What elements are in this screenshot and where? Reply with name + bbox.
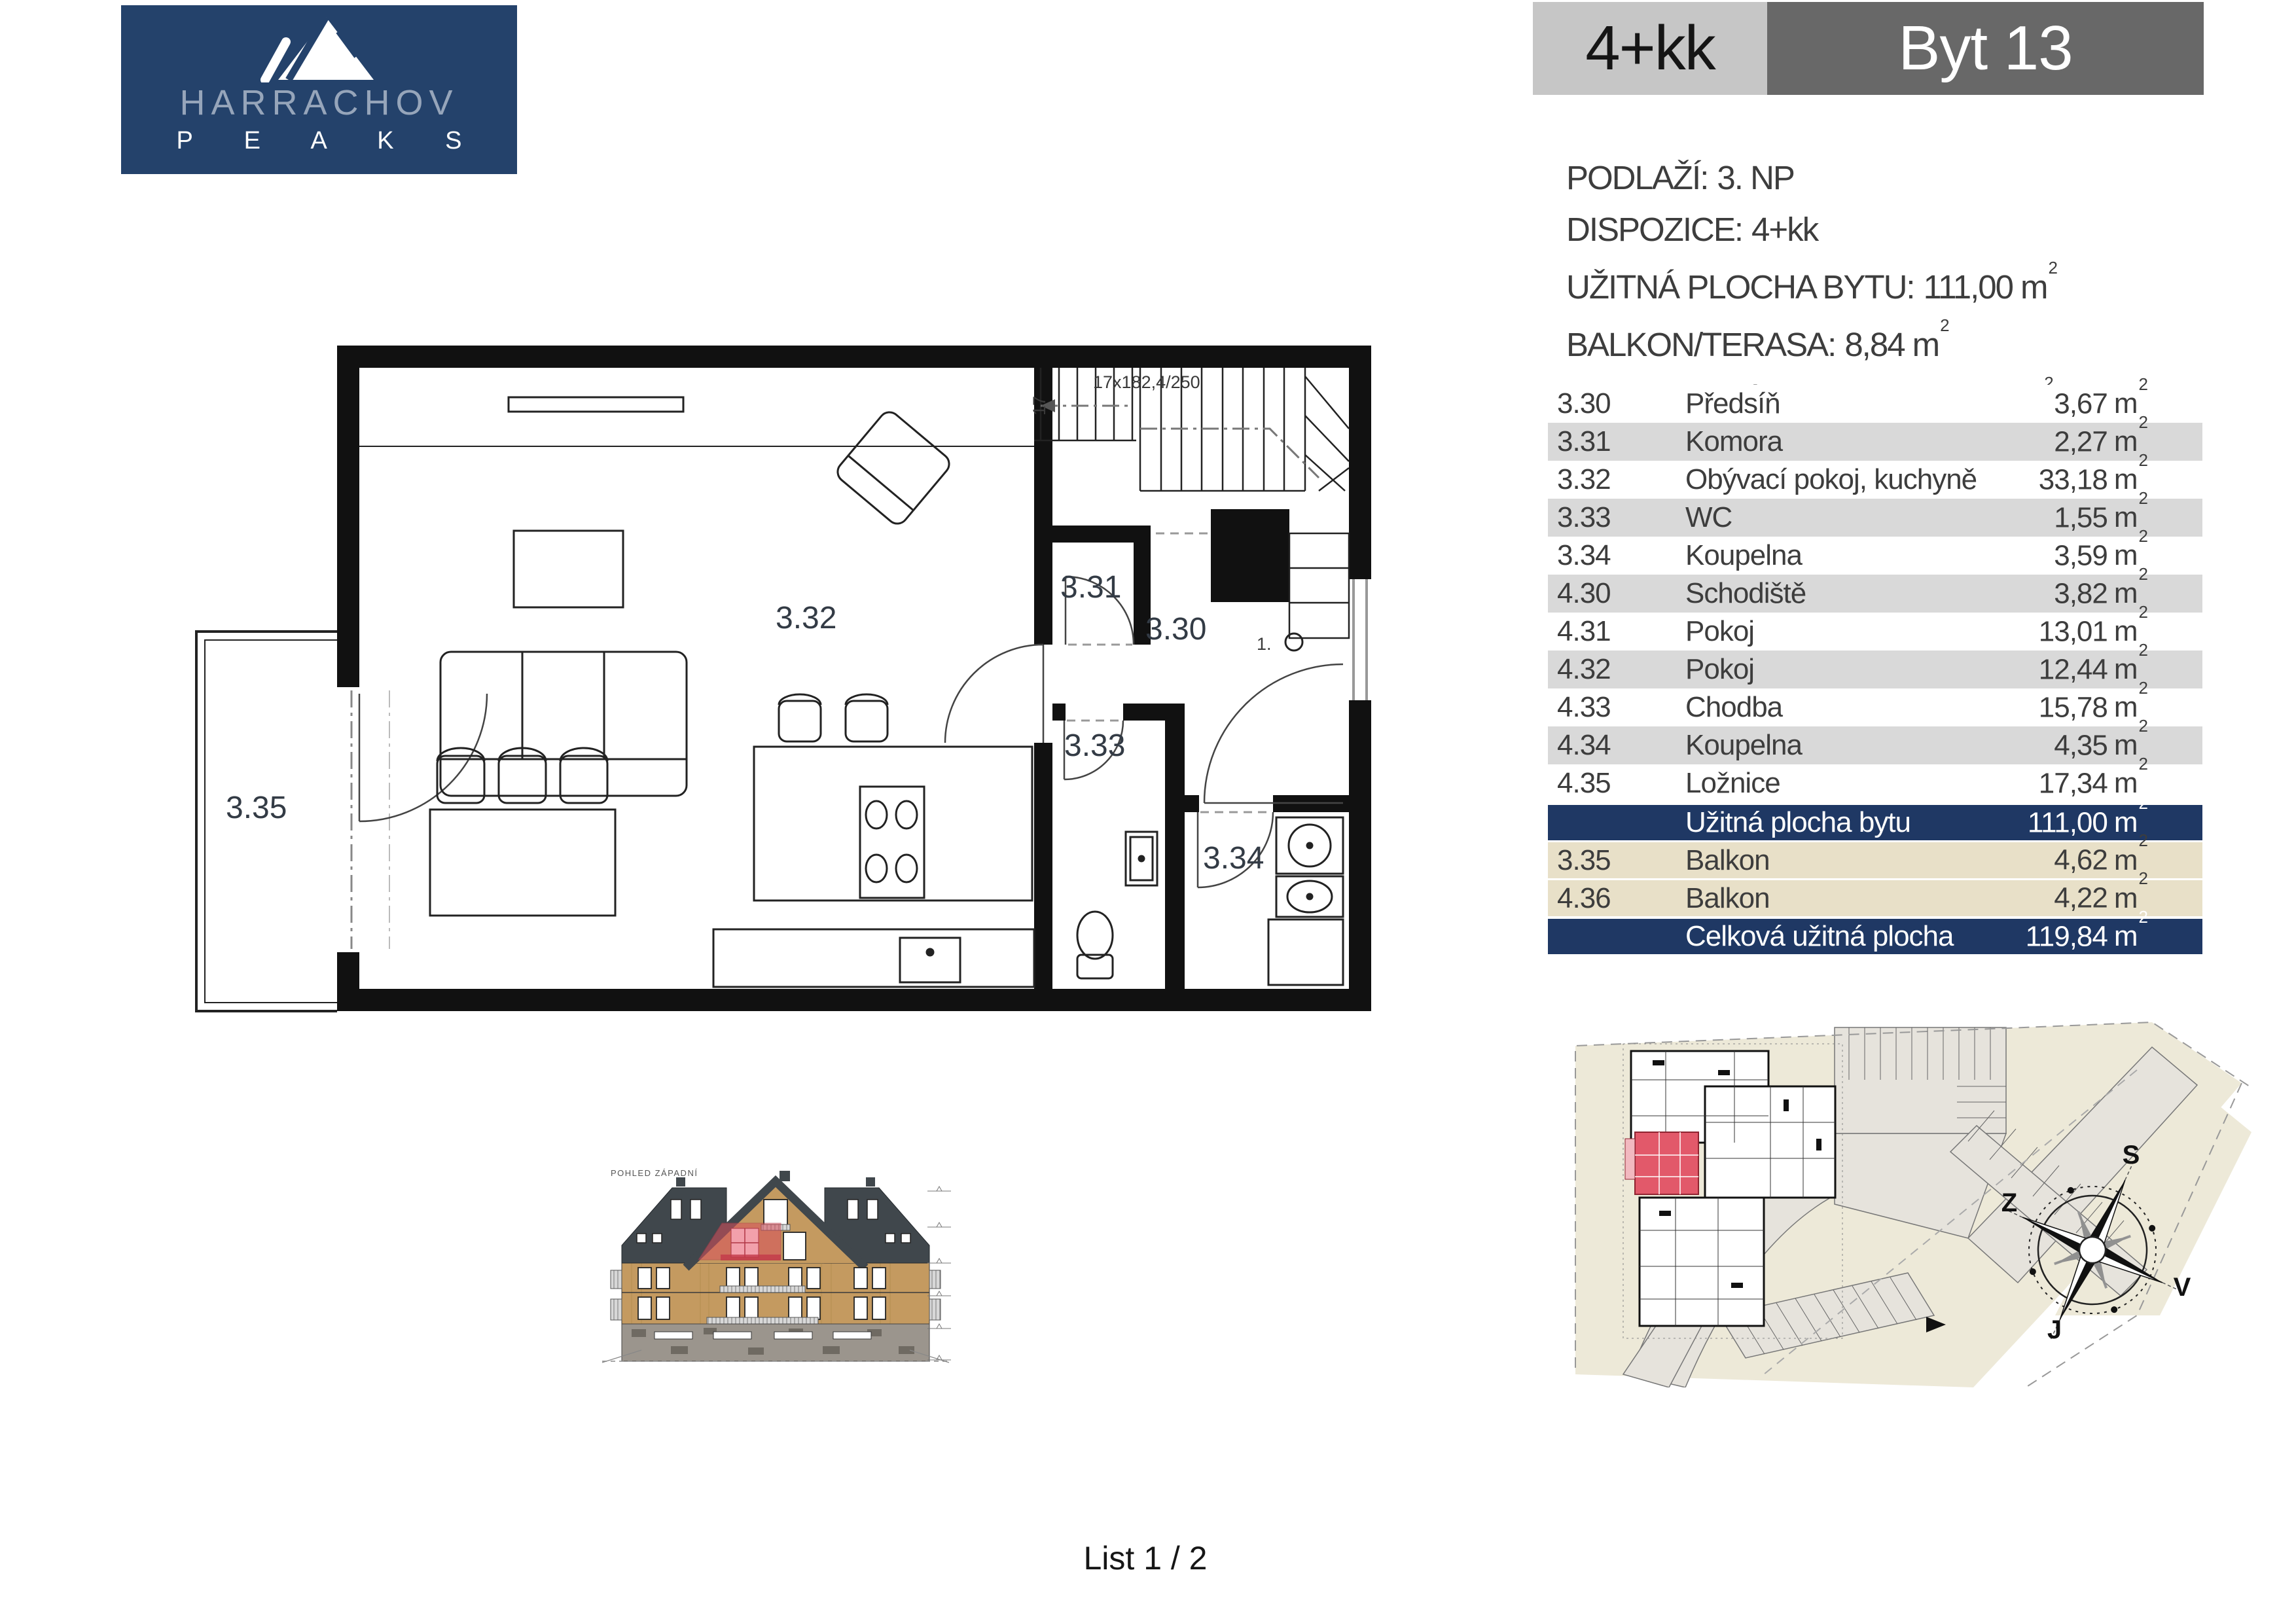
table-row: 3.32Obývací pokoj, kuchyně33,18m2 xyxy=(1548,461,2202,499)
table-row: 4.34Koupelna4,35m2 xyxy=(1548,726,2202,764)
compass-south-label: J xyxy=(2047,1315,2062,1344)
living-room-furniture xyxy=(359,397,1034,916)
staircase xyxy=(1034,368,1349,651)
floor-plan-drawing: 3.32 3.35 3.31 3.30 3.33 3.34 17x182,4/2… xyxy=(190,337,1374,1018)
compass-west-label: Z xyxy=(2001,1188,2017,1217)
table-row: 4.30Schodiště3,82m2 xyxy=(1548,575,2202,613)
stone-base xyxy=(622,1324,929,1361)
highlighted-unit xyxy=(1635,1132,1698,1194)
layout-badge-label: 4+kk xyxy=(1585,12,1714,84)
table-row: 4.33Chodba15,78m2 xyxy=(1548,688,2202,726)
table-row: 3.33WC1,55m2 xyxy=(1548,499,2202,537)
room-label-331: 3.31 xyxy=(1060,570,1121,605)
stair-walk-lines xyxy=(1041,406,1319,478)
detail-line: BALKON/TERASA:8,84m2 xyxy=(1566,313,2082,370)
room-label-332: 3.32 xyxy=(776,601,836,635)
room-area-table: 3.30Předsíň3,67m2 3.31Komora2,27m2 3.32O… xyxy=(1548,385,2202,954)
outer-walls xyxy=(337,346,1371,1011)
room-label-335: 3.35 xyxy=(226,791,287,825)
table-row: 3.31Komora2,27m2 xyxy=(1548,423,2202,461)
wc-fixtures xyxy=(1077,832,1157,978)
window-right xyxy=(1354,579,1367,700)
compass-east-label: V xyxy=(2174,1273,2191,1302)
dining-table xyxy=(430,810,615,916)
stair-count-label: 17 xyxy=(1030,396,1049,416)
building-elevation-drawing: POHLED ZÁPADNÍ xyxy=(592,1162,959,1378)
sofa xyxy=(440,652,687,796)
brand-logo: HARRACHOV P E A K S xyxy=(121,5,517,174)
summary-row-usable: Užitná plocha bytu111,00m2 xyxy=(1548,802,2202,840)
stair-start-label: 1. xyxy=(1257,634,1272,654)
table-row: 4.32Pokoj12,44m2 xyxy=(1548,651,2202,688)
room-label-334: 3.34 xyxy=(1203,841,1264,876)
detail-line: PODLAŽÍ:3. NP xyxy=(1566,152,2082,204)
chimney xyxy=(780,1171,790,1181)
table-row: 3.34Koupelna3,59m2 xyxy=(1548,537,2202,575)
table-row: 3.30Předsíň3,67m2 xyxy=(1548,385,2202,423)
compass-north-label: S xyxy=(2123,1141,2140,1169)
layout-badge: 4+kk xyxy=(1533,2,1767,95)
unit-badge-label: Byt 13 xyxy=(1898,12,2072,84)
unit-badge: Byt 13 xyxy=(1767,2,2204,95)
brand-name: HARRACHOV xyxy=(121,82,517,123)
shower xyxy=(1268,919,1343,985)
armchair xyxy=(833,408,953,527)
dining-chairs xyxy=(437,748,607,803)
interior-walls xyxy=(1034,368,1349,989)
room-label-333: 3.33 xyxy=(1064,728,1125,763)
bar-stools xyxy=(779,694,888,741)
bathroom-fixtures xyxy=(1268,817,1343,985)
table-row-balcony: 4.36Balkon4,22m2 xyxy=(1548,878,2202,916)
page-number: List 1 / 2 xyxy=(982,1539,1309,1577)
elevation-title: POHLED ZÁPADNÍ xyxy=(611,1168,698,1178)
stair-note-label: 17x182,4/250 xyxy=(1093,372,1200,392)
site-plan-drawing: S Z V J xyxy=(1568,1008,2265,1387)
kitchen-sink xyxy=(900,938,960,982)
table-row: 4.31Pokoj13,01m2 xyxy=(1548,613,2202,651)
mountain-icon xyxy=(257,14,382,82)
kitchen-fixtures xyxy=(713,694,1034,987)
sheet-page: HARRACHOV P E A K S 4+kk Byt 13 PODLAŽÍ:… xyxy=(0,0,2296,1623)
room-label-330: 3.30 xyxy=(1145,612,1206,647)
detail-line: DISPOZICE:4+kk xyxy=(1566,204,2082,255)
table-row: 4.35Ložnice17,34m2 xyxy=(1548,764,2202,802)
table-row-balcony: 3.35Balkon4,62m2 xyxy=(1548,840,2202,878)
brand-subname: P E A K S xyxy=(121,127,517,155)
kitchen-island xyxy=(754,747,1032,901)
detail-line: UŽITNÁ PLOCHA BYTU:111,00m2 xyxy=(1566,255,2082,313)
summary-row-total: Celková užitná plocha119,84m2 xyxy=(1548,916,2202,954)
kitchen-counter xyxy=(713,929,1034,987)
